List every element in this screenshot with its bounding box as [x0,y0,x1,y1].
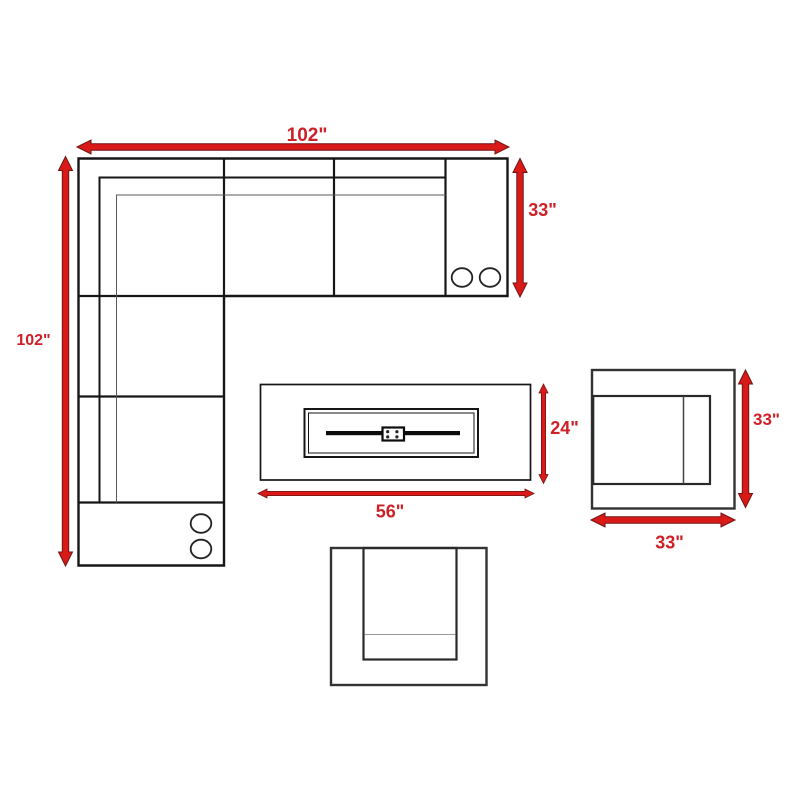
svg-text:56": 56" [376,502,405,522]
svg-text:102": 102" [16,332,50,349]
svg-text:33": 33" [655,533,684,553]
svg-text:33": 33" [528,200,557,220]
svg-text:102": 102" [287,125,328,146]
svg-text:24": 24" [550,418,579,438]
svg-text:33": 33" [753,410,780,429]
